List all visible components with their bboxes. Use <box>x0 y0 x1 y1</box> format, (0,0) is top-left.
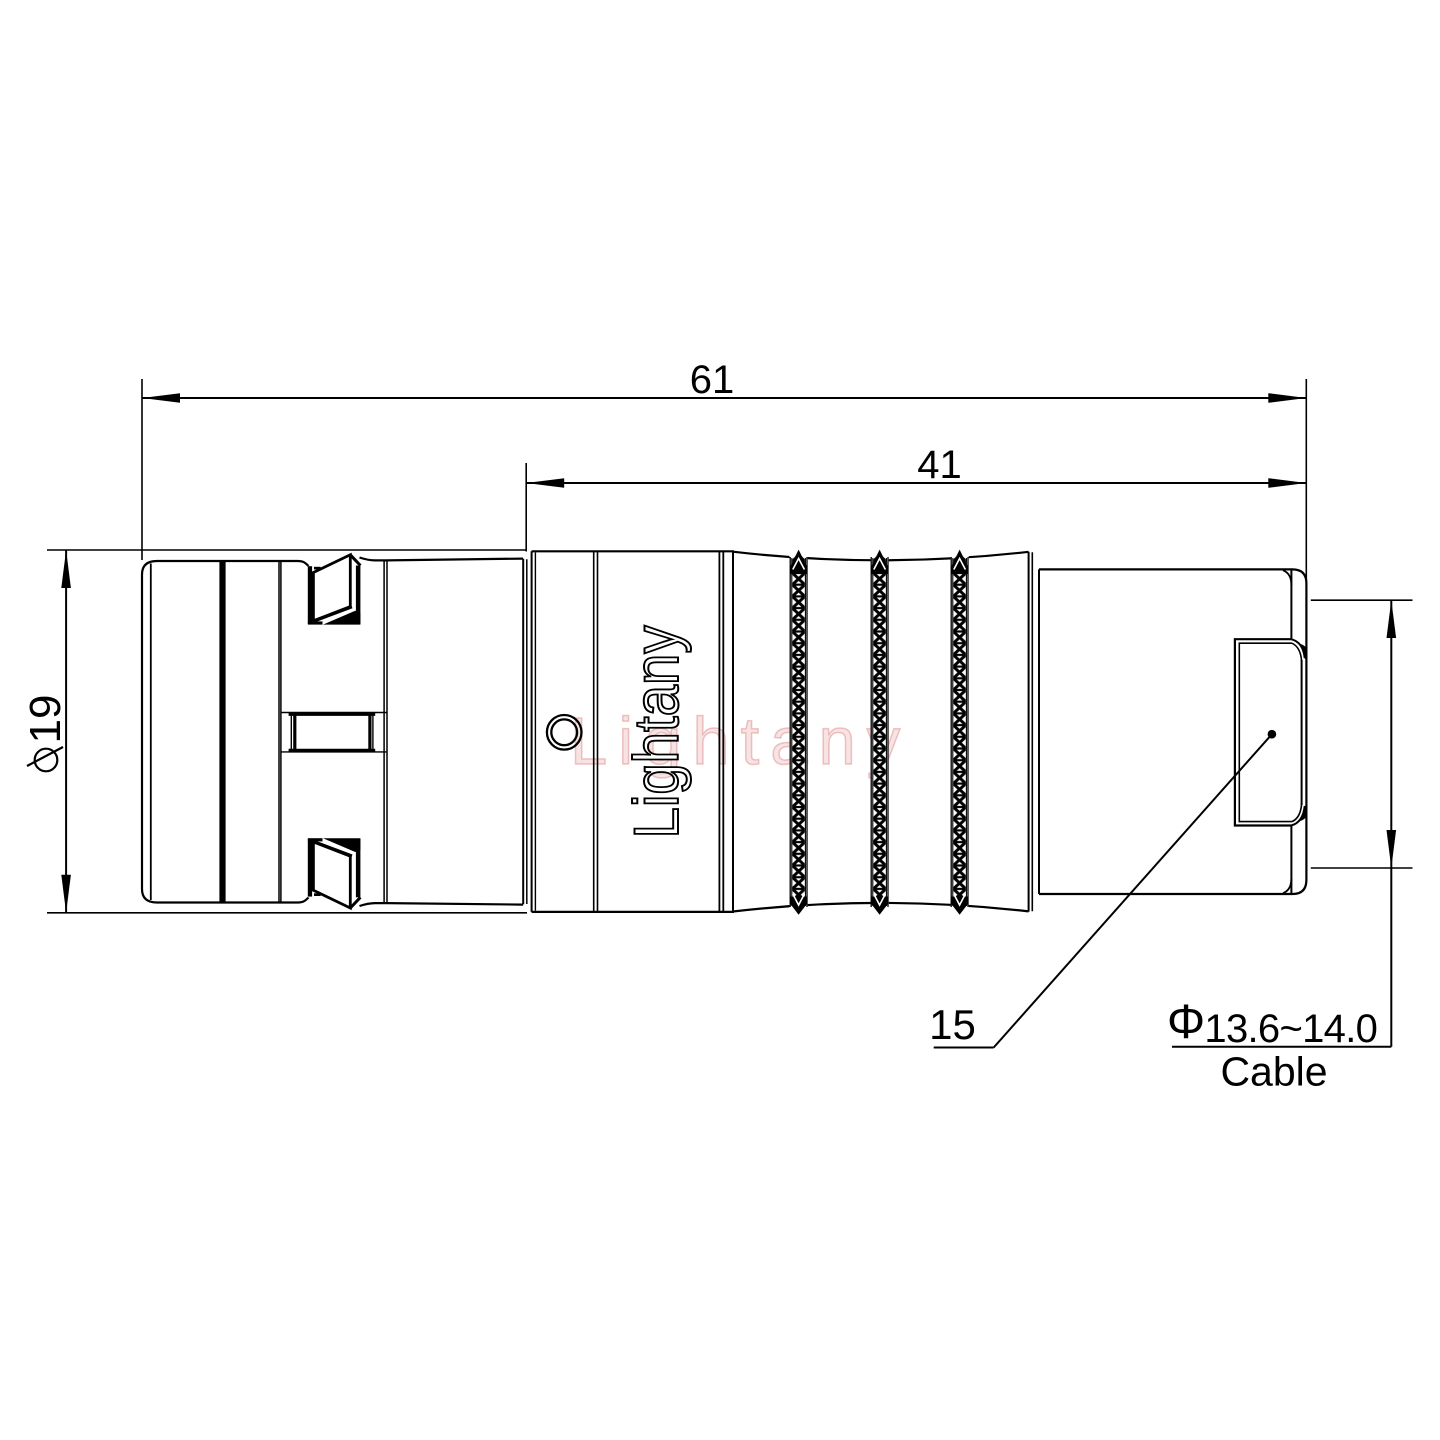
svg-text:19: 19 <box>21 695 70 744</box>
svg-text:Cable: Cable <box>1220 1049 1327 1095</box>
svg-text:41: 41 <box>917 443 962 487</box>
svg-text:Lightany: Lightany <box>622 625 692 838</box>
svg-text:61: 61 <box>690 358 735 402</box>
svg-text:15: 15 <box>929 1001 976 1048</box>
